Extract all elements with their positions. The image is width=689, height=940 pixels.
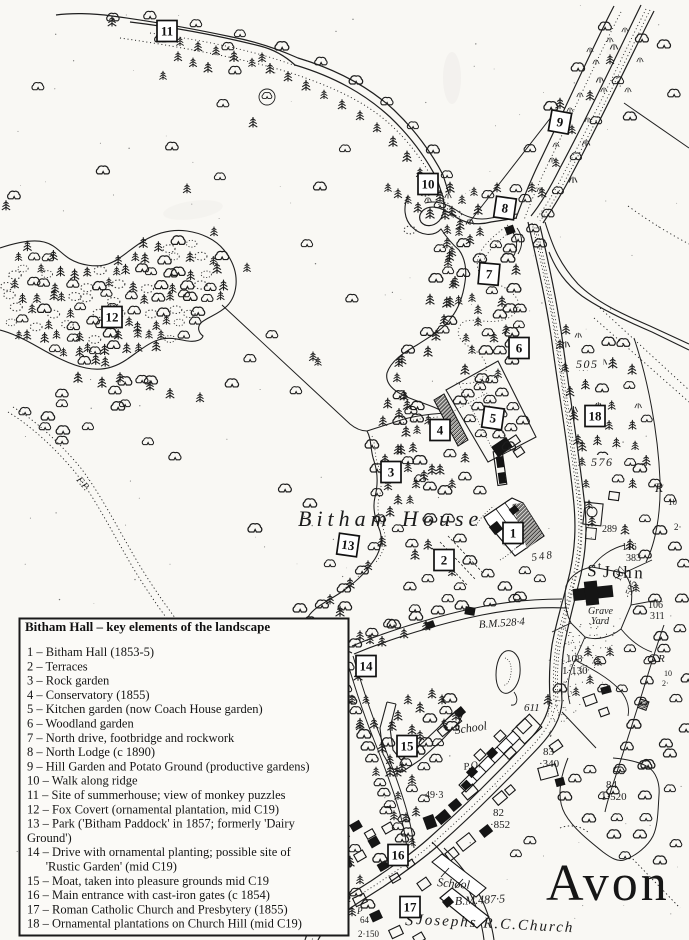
svg-text:2 – Terraces: 2 – Terraces [27,659,88,673]
svg-text:2·150: 2·150 [358,929,379,939]
svg-text:83: 83 [543,746,555,758]
svg-text:1·520: 1·520 [601,791,627,803]
svg-text:18: 18 [589,409,603,424]
svg-text:·852: ·852 [490,819,510,831]
svg-text:8 – North Lodge (c 1890): 8 – North Lodge (c 1890) [27,745,155,759]
svg-text:1: 1 [510,526,517,541]
svg-text:'Rustic Garden' (mid C19): 'Rustic Garden' (mid C19) [27,860,177,874]
svg-text:t: t [598,560,601,572]
svg-text:10: 10 [664,669,672,678]
svg-text:17: 17 [404,900,418,915]
svg-text:7 – North drive, footbridge an: 7 – North drive, footbridge and rockwork [27,731,235,745]
svg-text:2: 2 [441,553,448,568]
svg-text:6: 6 [516,341,523,356]
svg-text:108: 108 [566,653,583,665]
svg-text:17 – Roman Catholic Church and: 17 – Roman Catholic Church and Presbyter… [27,902,288,916]
svg-text:·340: ·340 [539,758,560,770]
svg-text:3 – Rock garden: 3 – Rock garden [27,674,110,688]
svg-text:576: 576 [591,455,614,469]
svg-text:13 – Park ('Bitham Paddock' in: 13 – Park ('Bitham Paddock' in 1857; for… [27,817,296,831]
svg-text:Ground'): Ground') [27,831,72,845]
svg-text:1·130: 1·130 [562,665,588,677]
svg-text:S: S [587,561,597,580]
svg-text:1 – Bitham Hall (1853-5): 1 – Bitham Hall (1853-5) [27,645,154,659]
svg-text:2·: 2· [674,522,682,532]
svg-text:16 – Main entrance with cast-i: 16 – Main entrance with cast-iron gates … [27,888,270,902]
svg-text:Yard: Yard [591,616,610,627]
svg-text:82: 82 [493,807,504,819]
svg-text:15: 15 [401,739,415,754]
svg-text:84: 84 [606,779,618,791]
svg-text:611: 611 [524,702,540,714]
svg-text:6 – Woodland garden: 6 – Woodland garden [27,717,134,731]
svg-text:14: 14 [360,659,374,674]
svg-text:12: 12 [106,310,119,325]
svg-text:Bitham Hall – key elements of: Bitham Hall – key elements of the landsc… [25,619,270,634]
svg-text:11: 11 [161,24,173,39]
svg-text:289: 289 [602,524,617,535]
svg-text:5 – Kitchen garden (now Coach: 5 – Kitchen garden (now Coach House gard… [27,702,263,716]
svg-text:64: 64 [360,915,370,925]
svg-text:4: 4 [437,423,444,438]
svg-text:505: 505 [576,357,599,371]
svg-text:10: 10 [668,497,678,507]
svg-text:2·: 2· [662,679,669,688]
svg-text:B.M.487·5: B.M.487·5 [454,891,505,908]
svg-text:14 – Drive with ornamental pla: 14 – Drive with ornamental planting; pos… [27,845,292,859]
svg-text:3: 3 [388,465,395,480]
svg-text:311: 311 [650,611,665,622]
svg-text:13: 13 [341,537,356,554]
svg-text:383: 383 [626,553,641,564]
svg-text:12 – Fox Covert (ornamental pl: 12 – Fox Covert (ornamental plantation, … [27,802,279,816]
svg-text:10 – Walk along ridge: 10 – Walk along ridge [27,774,138,788]
svg-text:Bitham House: Bitham House [298,506,483,531]
svg-text:4 – Conservatory (1855): 4 – Conservatory (1855) [27,688,150,702]
svg-text:49·3: 49·3 [425,790,443,801]
svg-text:R: R [657,653,665,665]
svg-text:R: R [654,480,663,495]
svg-text:11 – Site of summerhouse; view: 11 – Site of summerhouse; view of monkey… [27,788,286,802]
svg-text:10: 10 [422,177,435,192]
svg-text:18 – Ornamental plantations on: 18 – Ornamental plantations on Church Hi… [27,917,302,931]
svg-text:16: 16 [392,848,406,863]
svg-text:116: 116 [622,542,637,553]
svg-text:106: 106 [648,600,663,611]
svg-text:15 – Moat, taken into pleasure: 15 – Moat, taken into pleasure grounds m… [27,874,269,888]
svg-text:School: School [437,875,471,892]
svg-text:Avon: Avon [546,855,670,912]
svg-text:9 – Hill Garden and Potato Gro: 9 – Hill Garden and Potato Ground (produ… [27,759,310,773]
